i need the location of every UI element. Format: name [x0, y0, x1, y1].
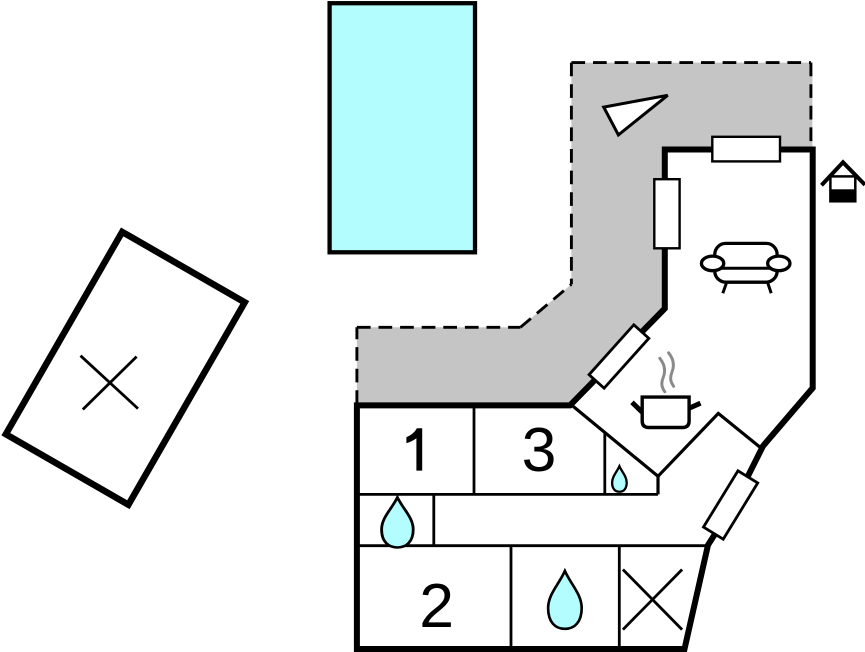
svg-text:2: 2: [419, 571, 454, 641]
svg-text:3: 3: [522, 415, 557, 485]
